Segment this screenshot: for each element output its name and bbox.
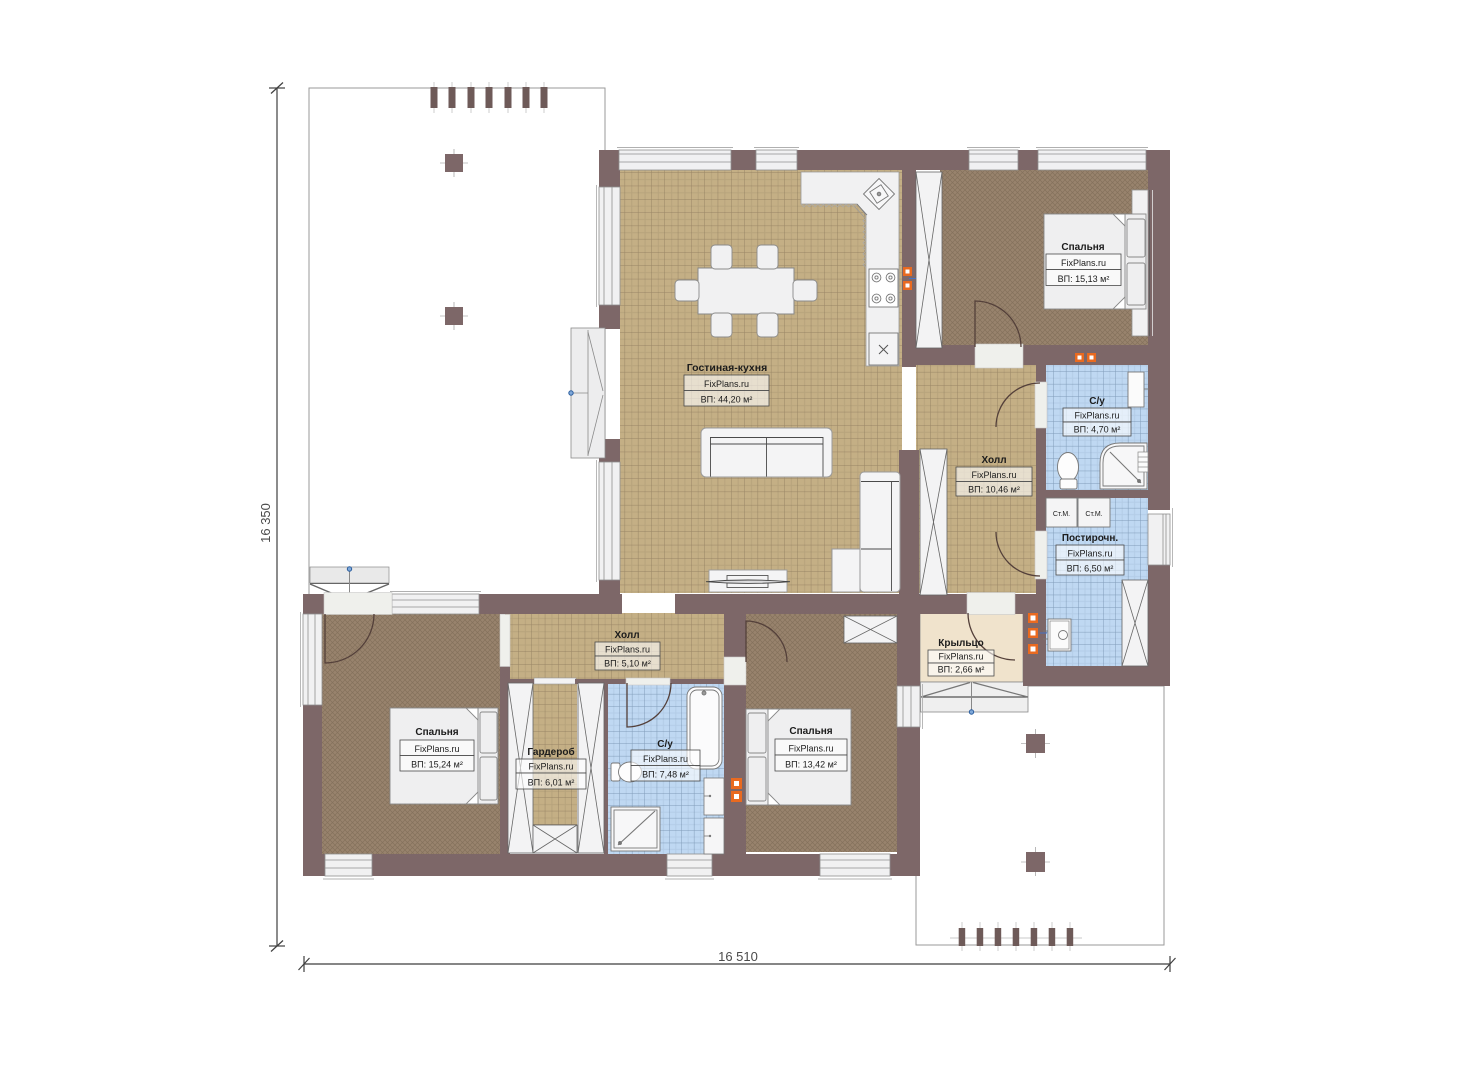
svg-text:Спальня: Спальня (1061, 242, 1104, 253)
svg-text:Ст.М.: Ст.М. (1053, 511, 1070, 518)
svg-text:Холл: Холл (981, 455, 1006, 466)
svg-text:FixPlans.ru: FixPlans.ru (1074, 411, 1119, 421)
svg-text:FixPlans.ru: FixPlans.ru (605, 645, 650, 655)
svg-text:FixPlans.ru: FixPlans.ru (1061, 258, 1106, 268)
svg-text:ВП: 15,13 м²: ВП: 15,13 м² (1058, 274, 1110, 284)
svg-text:ВП: 6,50 м²: ВП: 6,50 м² (1067, 564, 1114, 574)
svg-text:С/у: С/у (657, 739, 673, 750)
svg-text:ВП: 2,66 м²: ВП: 2,66 м² (938, 665, 985, 675)
svg-text:FixPlans.ru: FixPlans.ru (704, 379, 749, 389)
svg-text:Постирочн.: Постирочн. (1062, 533, 1119, 544)
svg-text:FixPlans.ru: FixPlans.ru (938, 652, 983, 662)
svg-text:ВП: 4,70 м²: ВП: 4,70 м² (1074, 425, 1121, 435)
svg-text:Гардероб: Гардероб (527, 746, 574, 758)
svg-text:Холл: Холл (614, 630, 639, 641)
svg-text:FixPlans.ru: FixPlans.ru (643, 754, 688, 764)
svg-text:ВП: 13,42 м²: ВП: 13,42 м² (785, 760, 837, 770)
svg-text:Спальня: Спальня (789, 726, 832, 737)
svg-text:FixPlans.ru: FixPlans.ru (528, 762, 573, 772)
svg-text:ВП: 44,20 м²: ВП: 44,20 м² (701, 395, 753, 405)
svg-text:Ст.М.: Ст.М. (1085, 511, 1102, 518)
svg-text:16 350: 16 350 (258, 503, 273, 543)
svg-text:ВП: 10,46 м²: ВП: 10,46 м² (968, 485, 1020, 495)
svg-text:16 510: 16 510 (718, 949, 758, 964)
svg-text:ВП: 5,10 м²: ВП: 5,10 м² (604, 659, 651, 669)
svg-text:FixPlans.ru: FixPlans.ru (971, 470, 1016, 480)
svg-text:ВП: 7,48 м²: ВП: 7,48 м² (642, 770, 689, 780)
svg-text:Спальня: Спальня (415, 727, 458, 738)
svg-text:Крыльцо: Крыльцо (938, 638, 984, 649)
svg-text:FixPlans.ru: FixPlans.ru (1067, 549, 1112, 559)
svg-text:ВП: 6,01 м²: ВП: 6,01 м² (528, 778, 575, 788)
svg-text:FixPlans.ru: FixPlans.ru (788, 744, 833, 754)
svg-text:С/у: С/у (1089, 396, 1105, 407)
svg-text:Гостиная-кухня: Гостиная-кухня (687, 362, 767, 374)
svg-text:FixPlans.ru: FixPlans.ru (414, 744, 459, 754)
svg-text:ВП: 15,24 м²: ВП: 15,24 м² (411, 760, 463, 770)
